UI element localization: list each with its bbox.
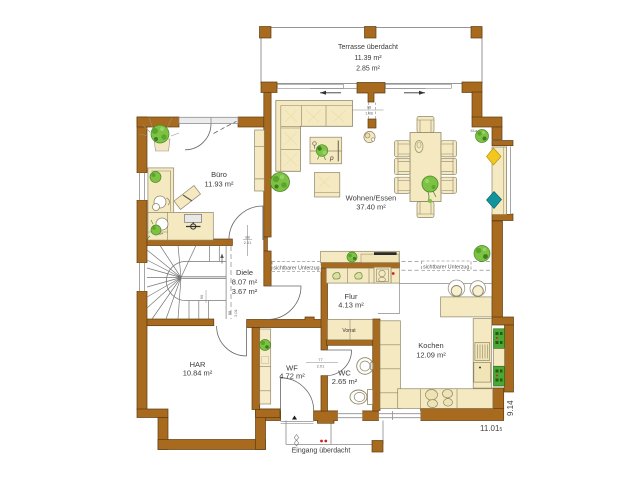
svg-text:3.67 m²: 3.67 m² (232, 287, 258, 296)
svg-text:90: 90 (199, 294, 204, 299)
svg-text:11.015: 11.015 (480, 424, 502, 433)
svg-text:8.07 m²: 8.07 m² (232, 278, 258, 287)
svg-text:12.09 m²: 12.09 m² (416, 351, 446, 360)
svg-text:11.39 m²: 11.39 m² (354, 55, 382, 62)
svg-text:88: 88 (227, 310, 232, 315)
svg-text:sichtbarer Unterzug: sichtbarer Unterzug (423, 265, 469, 271)
svg-text:Eingang überdacht: Eingang überdacht (292, 448, 351, 455)
svg-text:4.72 m²: 4.72 m² (279, 372, 305, 381)
svg-text:10.84 m²: 10.84 m² (183, 369, 213, 378)
svg-text:2.01: 2.01 (233, 308, 238, 317)
svg-text:4.13 m²: 4.13 m² (338, 301, 364, 310)
svg-text:p: p (329, 155, 334, 162)
svg-text:Diele: Diele (236, 268, 253, 277)
svg-text:61a: 61a (471, 128, 478, 133)
svg-text:2.65 m²: 2.65 m² (332, 377, 358, 386)
svg-text:Wohnen/Essen: Wohnen/Essen (346, 194, 397, 203)
svg-text:77: 77 (318, 357, 323, 362)
svg-text:2.01: 2.01 (244, 240, 253, 245)
svg-text:Büro: Büro (211, 170, 227, 179)
svg-text:Kochen: Kochen (418, 341, 443, 350)
svg-text:Vorrat: Vorrat (342, 328, 356, 334)
svg-text:37.40 m²: 37.40 m² (356, 203, 386, 212)
svg-text:9.14: 9.14 (506, 400, 515, 416)
svg-text:sichtbarer Unterzug: sichtbarer Unterzug (273, 265, 319, 271)
svg-text:11.93 m²: 11.93 m² (204, 180, 234, 189)
svg-text:1.88: 1.88 (365, 111, 374, 116)
svg-text:Terrasse überdacht: Terrasse überdacht (338, 44, 398, 51)
svg-text:88: 88 (245, 235, 250, 240)
svg-text:2.85 m²: 2.85 m² (356, 66, 380, 73)
svg-text:2.01: 2.01 (317, 364, 326, 369)
svg-text:98: 98 (367, 105, 372, 110)
